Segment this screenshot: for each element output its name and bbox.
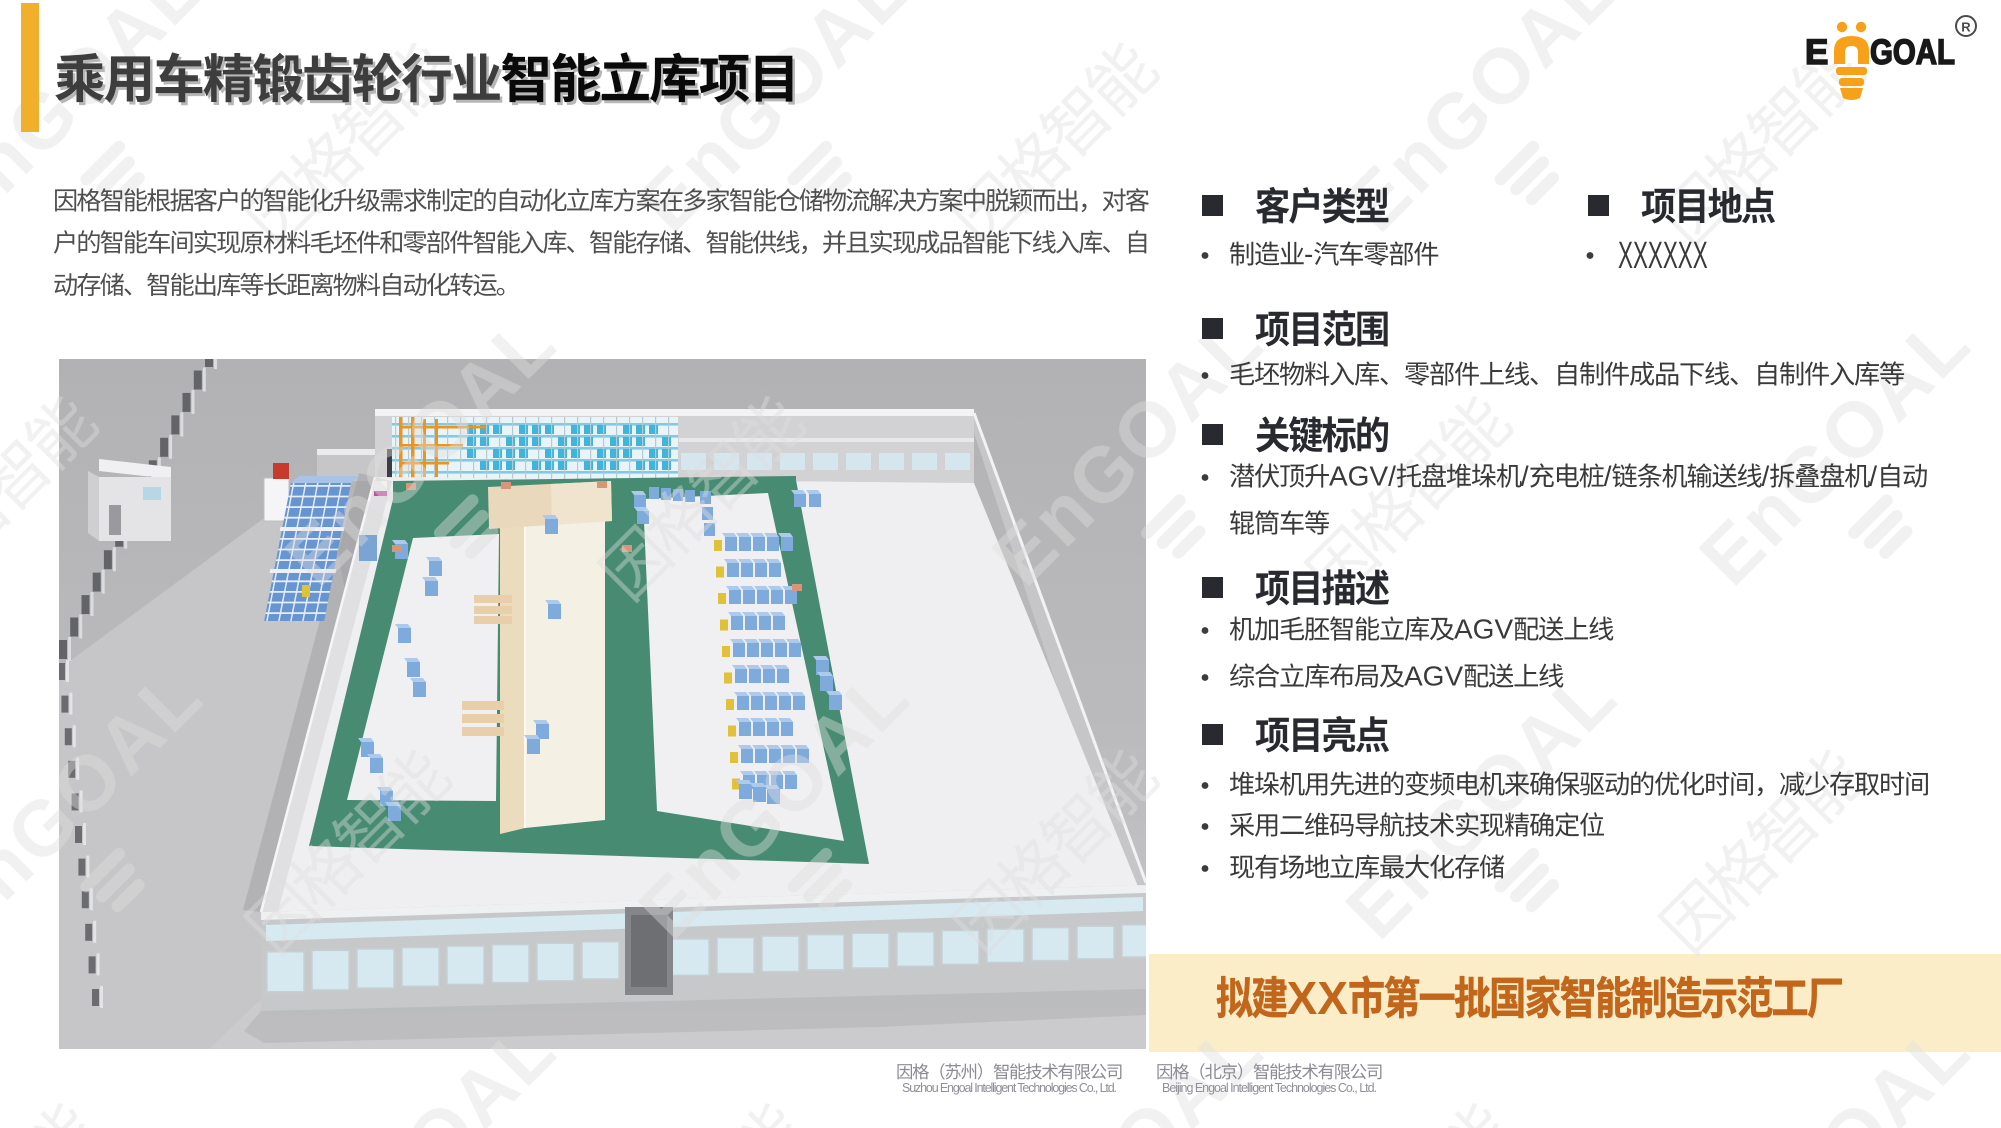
svg-text:AGV: AGV	[1404, 661, 1463, 692]
svg-text:AGV: AGV	[1454, 614, 1513, 645]
svg-text:XXXXXX: XXXXXX	[1618, 234, 1708, 277]
svg-text:/: /	[1762, 461, 1770, 492]
svg-text:-: -	[1304, 239, 1313, 270]
svg-text:XX: XX	[1287, 972, 1349, 1024]
svg-text:Beijing Engoal Intelligent Tec: Beijing Engoal Intelligent Technologies …	[1162, 1081, 1377, 1095]
svg-text:AGV/: AGV/	[1329, 461, 1396, 492]
svg-text:E: E	[1805, 33, 1828, 72]
svg-text:/: /	[1604, 461, 1612, 492]
svg-text:GOAL: GOAL	[1870, 33, 1955, 72]
svg-text:R: R	[1961, 20, 1971, 35]
svg-text:Suzhou Engoal Intelligent Tech: Suzhou Engoal Intelligent Technologies C…	[902, 1081, 1117, 1095]
svg-text:/: /	[1869, 461, 1877, 492]
svg-text:/: /	[1521, 461, 1529, 492]
